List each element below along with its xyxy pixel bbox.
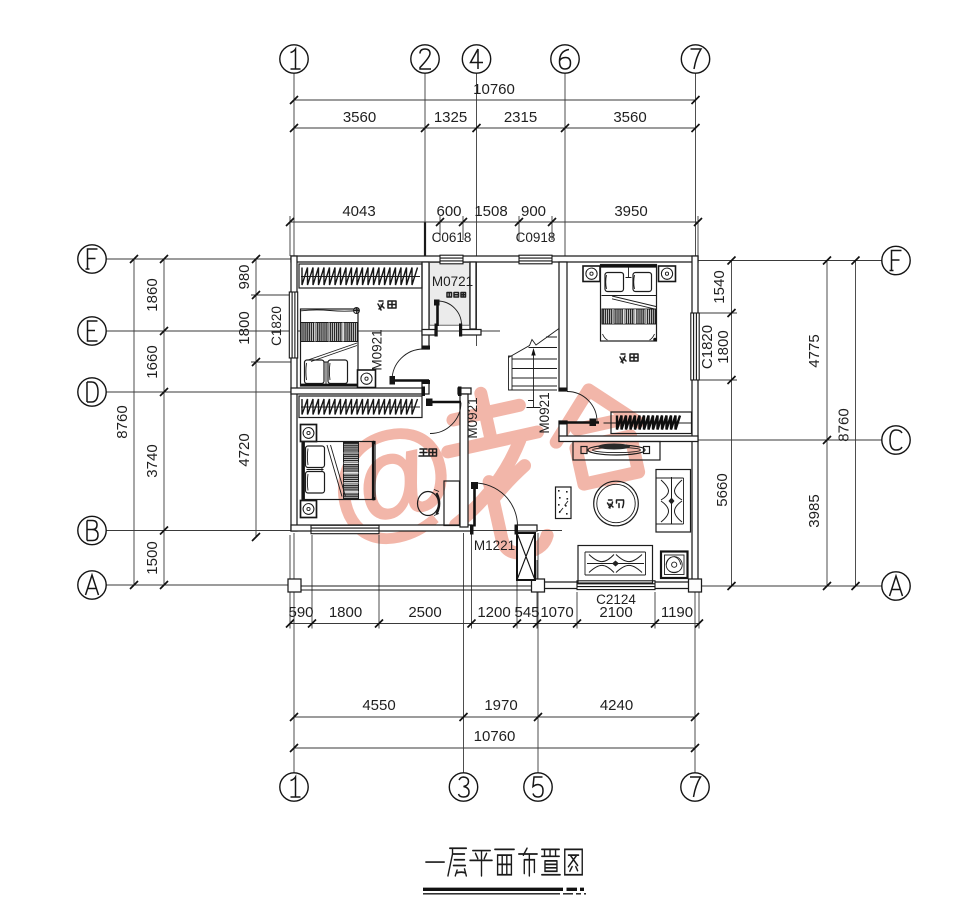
- svg-text:10760: 10760: [473, 81, 515, 98]
- svg-text:600: 600: [436, 203, 461, 220]
- svg-text:3985: 3985: [806, 494, 823, 527]
- svg-text:M1221: M1221: [474, 538, 515, 553]
- svg-text:3560: 3560: [343, 109, 376, 126]
- svg-text:C0918: C0918: [516, 230, 556, 245]
- svg-text:4043: 4043: [342, 203, 375, 220]
- svg-text:4550: 4550: [362, 697, 395, 714]
- svg-text:M0921: M0921: [537, 392, 552, 433]
- svg-text:5660: 5660: [714, 473, 731, 506]
- svg-text:1860: 1860: [144, 278, 161, 311]
- svg-text:1970: 1970: [484, 697, 517, 714]
- svg-text:1325: 1325: [434, 109, 467, 126]
- svg-text:1800: 1800: [236, 311, 253, 344]
- svg-text:3740: 3740: [144, 444, 161, 477]
- svg-text:1660: 1660: [144, 345, 161, 378]
- svg-text:980: 980: [236, 264, 253, 289]
- svg-text:900: 900: [521, 203, 546, 220]
- svg-text:C1820: C1820: [699, 325, 716, 369]
- svg-text:M0921: M0921: [370, 329, 385, 370]
- svg-text:1800: 1800: [715, 330, 732, 363]
- svg-text:1500: 1500: [144, 541, 161, 574]
- svg-text:590: 590: [288, 604, 313, 621]
- svg-text:1200: 1200: [477, 604, 510, 621]
- svg-text:545: 545: [514, 604, 539, 621]
- svg-text:M0721: M0721: [432, 274, 473, 289]
- svg-text:1540: 1540: [711, 270, 728, 303]
- svg-text:4240: 4240: [600, 697, 633, 714]
- svg-text:1070: 1070: [540, 604, 573, 621]
- svg-text:1508: 1508: [474, 203, 507, 220]
- svg-text:1190: 1190: [661, 604, 693, 621]
- svg-text:2500: 2500: [408, 604, 441, 621]
- svg-text:2315: 2315: [504, 109, 537, 126]
- svg-text:8760: 8760: [836, 408, 853, 441]
- svg-text:3950: 3950: [614, 203, 647, 220]
- svg-text:1800: 1800: [329, 604, 362, 621]
- svg-text:C0618: C0618: [432, 230, 472, 245]
- svg-text:4720: 4720: [236, 433, 253, 466]
- svg-text:C2124: C2124: [596, 592, 636, 607]
- svg-text:8760: 8760: [114, 405, 131, 438]
- svg-text:10760: 10760: [474, 728, 516, 745]
- svg-text:4775: 4775: [806, 334, 823, 367]
- svg-text:3560: 3560: [613, 109, 646, 126]
- svg-text:M0921: M0921: [465, 397, 480, 438]
- svg-text:C1820: C1820: [269, 306, 284, 346]
